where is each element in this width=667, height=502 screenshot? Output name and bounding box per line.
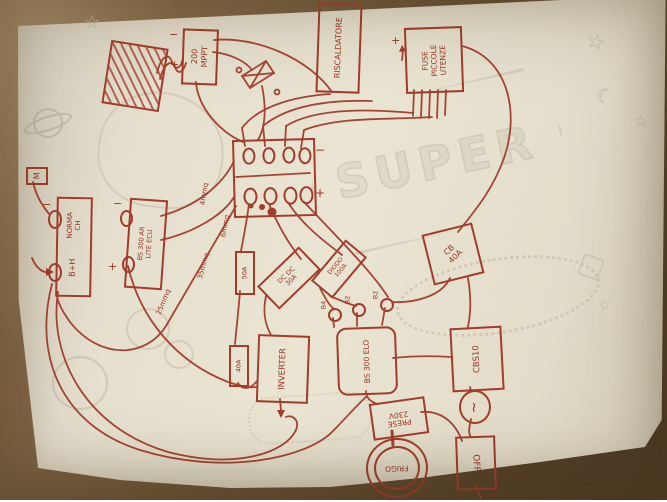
solar-controller-box: 200 MPPT	[181, 28, 219, 85]
sockets-230v-box: PRESE 230V	[369, 396, 430, 440]
fridge-inner-circle: FRIGO	[371, 443, 423, 493]
battery-terminal	[282, 146, 295, 163]
off-switch-box: OFF	[455, 435, 497, 490]
ecu-label: LITE ECU	[145, 227, 155, 261]
battery2-terminal	[48, 263, 62, 282]
fuse-50a-box: 50A	[235, 251, 255, 295]
fuse-comb-line	[437, 90, 438, 118]
wire-fusebox-breaker-arc	[458, 46, 511, 232]
fuse-40a-box: 40A	[229, 345, 249, 387]
fuse-comb-line	[421, 90, 422, 117]
ac-plug-circle: ~	[459, 390, 491, 424]
solar-panel	[101, 40, 168, 112]
terminal-label-b4: B4	[319, 301, 327, 310]
wire-mppt-battery	[196, 82, 243, 142]
off-label: OFF	[471, 454, 482, 472]
wire-dcdc-inverter	[264, 296, 271, 335]
battery1-label: CH	[74, 200, 83, 250]
inverter-label: INVERTER	[277, 348, 289, 390]
batteries-box: NORMA CH B+H	[55, 197, 93, 298]
fuse-50a-label: 50A	[241, 267, 249, 280]
polarity-plus: +	[391, 34, 400, 47]
polarity-plus: +	[315, 186, 325, 200]
ecu-terminal	[122, 256, 135, 273]
ecu-terminal	[120, 210, 133, 227]
wire-ecu-battery	[161, 161, 234, 216]
battery-terminal	[242, 147, 255, 164]
battery-terminal	[243, 187, 257, 205]
ring-terminal-b4	[328, 308, 342, 322]
battery2-label: B+H	[67, 248, 77, 288]
wire-bs300-cbs	[393, 356, 451, 358]
polarity-minus: −	[169, 28, 178, 41]
fuse-comb-line	[413, 90, 414, 116]
cbs10-label: CBS10	[471, 345, 483, 373]
fuse-40a-label: 40A	[235, 360, 243, 373]
fridge-label: FRIGO	[385, 463, 409, 473]
battery1-terminal	[48, 210, 62, 229]
polarity-minus: −	[42, 198, 51, 211]
arrowhead	[277, 410, 285, 418]
fusebox-label: UTENZE	[438, 44, 448, 76]
ground-flag: M	[26, 167, 48, 185]
polarity-minus: −	[113, 197, 122, 210]
cbs10-box: CBS10	[449, 326, 504, 393]
polarity-plus: +	[108, 260, 117, 273]
inverter-box: INVERTER	[256, 334, 310, 404]
wire-fuse50-fuse40	[235, 291, 240, 344]
wire-breaker-cbs	[468, 278, 470, 327]
bs300-unit-box: BS 300 ELO	[336, 326, 398, 396]
ac-symbol: ~	[467, 401, 484, 413]
photo-scene: ☆ ☆ ☆ ☆ ☾ SUPER	[0, 0, 667, 500]
fuse-comb-line	[429, 90, 430, 118]
ground-loop-long	[46, 284, 366, 463]
terminal-label-b2: B2	[343, 296, 351, 305]
battery-terminal	[299, 186, 313, 204]
heater-label: RISCALDATORE	[333, 17, 345, 78]
polarity-plus: +	[170, 58, 179, 71]
battery-terminal	[263, 187, 277, 205]
heater-box: RISCALDATORE	[315, 2, 362, 93]
ring-terminal-b2	[380, 298, 394, 312]
ground-label: M	[32, 173, 42, 180]
battery-terminal-block	[232, 138, 317, 218]
battery-terminal	[262, 147, 275, 164]
bs300-label: BS 300 ELO	[362, 339, 373, 383]
fuse-comb-line	[445, 90, 446, 115]
wire-battery-heater	[242, 94, 330, 128]
wire-battery-fusebox	[304, 117, 432, 130]
wire-battery-bundle	[263, 101, 372, 126]
wire-mppt-fuse	[213, 52, 252, 70]
wire-dot	[237, 68, 242, 73]
small-loads-fusebox: FUSE PICCOLE UTENZE	[404, 26, 464, 94]
battery2-arrow-line	[32, 258, 48, 272]
battery-terminal	[283, 186, 297, 204]
ring-terminal-b2	[352, 303, 366, 317]
wire-mppt-heater	[214, 40, 332, 92]
solar-controller-label: MPPT	[200, 46, 210, 68]
wire-dot	[275, 90, 280, 95]
terminal-label-b2: B2	[371, 291, 379, 300]
battery-terminal	[298, 147, 311, 164]
polarity-minus: −	[315, 143, 325, 157]
